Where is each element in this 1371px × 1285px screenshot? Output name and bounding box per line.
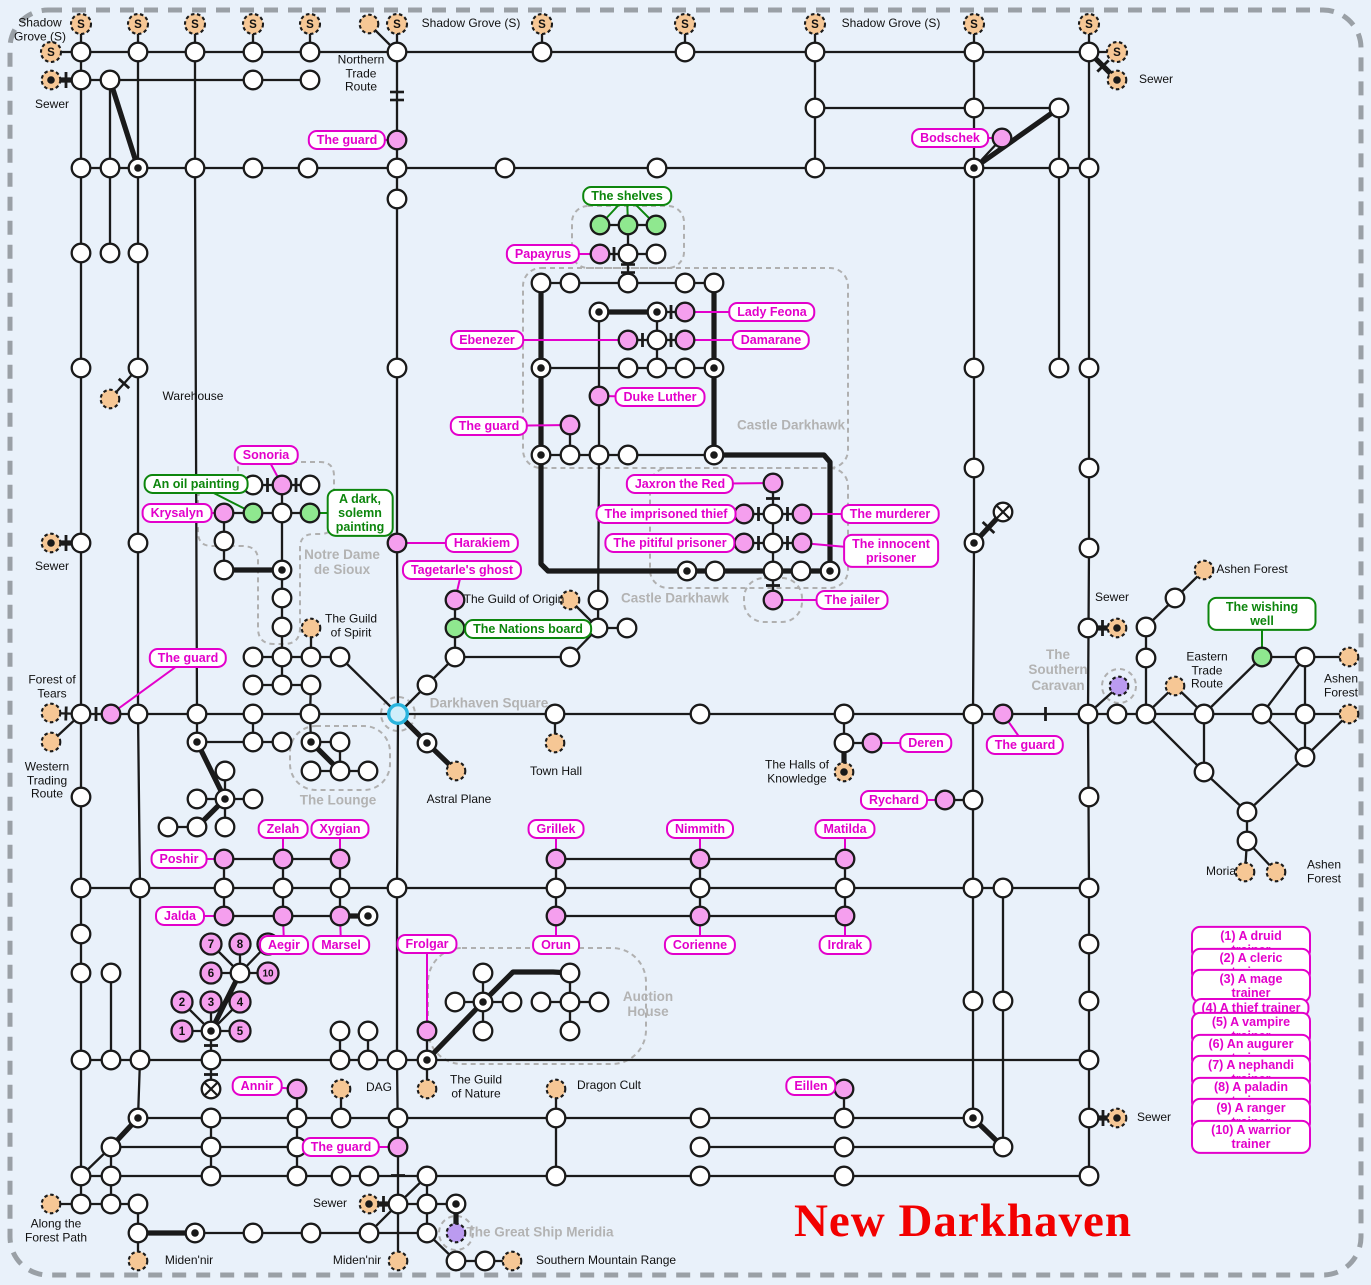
npc-label: The guard bbox=[986, 735, 1064, 755]
npc-label: Krysalyn bbox=[142, 503, 213, 523]
area-label: Miden'nir bbox=[165, 1254, 213, 1268]
area-label: Ashen Forest bbox=[1216, 563, 1287, 577]
area-label: Sewer bbox=[1137, 1111, 1171, 1125]
npc-label: Zelah bbox=[258, 819, 309, 839]
area-label: Sewer bbox=[1139, 73, 1173, 87]
area-label: DAG bbox=[366, 1081, 392, 1095]
area-label: Shadow Grove (S) bbox=[422, 17, 521, 31]
npc-label: The pitiful prisoner bbox=[604, 533, 735, 553]
npc-label: Papayrus bbox=[506, 244, 580, 264]
npc-label: The guard bbox=[149, 648, 227, 668]
npc-label: Jalda bbox=[155, 906, 205, 926]
area-label: Warehouse bbox=[163, 390, 224, 404]
area-label: Along the Forest Path bbox=[25, 1217, 87, 1244]
npc-label: Poshir bbox=[151, 849, 208, 869]
npc-label: Jaxron the Red bbox=[626, 474, 734, 494]
area-label: Shadow Grove (S) bbox=[14, 16, 66, 43]
object-label: An oil painting bbox=[144, 474, 249, 494]
npc-label: Aegir bbox=[259, 935, 309, 955]
npc-label: Marsel bbox=[312, 935, 370, 955]
npc-label: Damarane bbox=[732, 330, 810, 350]
object-label: The shelves bbox=[582, 186, 672, 206]
trainer-legend-item: (10) A warrior trainer bbox=[1191, 1119, 1311, 1153]
npc-label: Duke Luther bbox=[615, 387, 706, 407]
district-label: The Southern Caravan bbox=[1028, 647, 1087, 693]
npc-label: Eillen bbox=[785, 1076, 836, 1096]
area-label: The Halls of Knowledge bbox=[765, 758, 829, 785]
npc-label: Deren bbox=[899, 733, 952, 753]
area-label: Forest of Tears bbox=[28, 673, 75, 700]
npc-label: Ebenezer bbox=[450, 330, 524, 350]
area-label: Sewer bbox=[1095, 591, 1129, 605]
area-label: Moria bbox=[1206, 865, 1236, 879]
area-label: The Guild of Nature bbox=[450, 1073, 502, 1100]
area-label: Eastern Trade Route bbox=[1186, 651, 1227, 692]
map-title: New Darkhaven bbox=[794, 1194, 1132, 1248]
npc-label: Xygian bbox=[311, 819, 370, 839]
area-label: Town Hall bbox=[530, 765, 582, 779]
npc-label: The guard bbox=[450, 416, 528, 436]
npc-label: Nimmith bbox=[666, 819, 734, 839]
area-label: Sewer bbox=[35, 560, 69, 574]
npc-label: Lady Feona bbox=[728, 302, 815, 322]
area-label: Ashen Forest bbox=[1324, 672, 1358, 699]
area-label: Northern Trade Route bbox=[338, 54, 385, 95]
object-label: The Nations board bbox=[464, 619, 592, 639]
npc-label: The guard bbox=[302, 1137, 380, 1157]
district-label: Notre Dame de Sioux bbox=[304, 547, 380, 578]
npc-label: Frolgar bbox=[396, 934, 457, 954]
npc-label: Annir bbox=[232, 1076, 283, 1096]
new-darkhaven-map: SSSSSSSSSSSSS78961023415 The guardBodsch… bbox=[0, 0, 1371, 1285]
area-label: The Guild of Spirit bbox=[325, 612, 377, 639]
npc-label: Bodschek bbox=[911, 128, 989, 148]
npc-label: Tagetarle's ghost bbox=[402, 560, 522, 580]
object-label: The wishing well bbox=[1208, 597, 1317, 631]
area-label: Miden'nir bbox=[333, 1254, 381, 1268]
area-label: Ashen Forest bbox=[1301, 858, 1348, 885]
npc-label: Grillek bbox=[528, 819, 585, 839]
map-labels-layer: The guardBodschekPapayrusLady FeonaEbene… bbox=[0, 0, 1371, 1285]
npc-label: Matilda bbox=[814, 819, 875, 839]
area-label: Southern Mountain Range bbox=[536, 1254, 676, 1268]
npc-label: The imprisoned thief bbox=[596, 504, 737, 524]
object-label: A dark, solemn painting bbox=[327, 489, 394, 537]
npc-label: The guard bbox=[308, 130, 386, 150]
area-label: Astral Plane bbox=[427, 793, 492, 807]
district-label: Darkhaven Square bbox=[430, 695, 549, 710]
npc-label: Corienne bbox=[664, 935, 736, 955]
npc-label: Orun bbox=[532, 935, 580, 955]
district-label: Castle Darkhawk bbox=[737, 417, 845, 432]
district-label: Auction House bbox=[623, 989, 673, 1020]
district-label: Castle Darkhawk bbox=[621, 590, 729, 605]
npc-label: The jailer bbox=[816, 590, 889, 610]
area-label: Western Trading Route bbox=[25, 761, 69, 802]
area-label: Sewer bbox=[313, 1197, 347, 1211]
npc-label: Irdrak bbox=[819, 935, 872, 955]
npc-label: Sonoria bbox=[234, 445, 299, 465]
npc-label: Rychard bbox=[860, 790, 928, 810]
area-label: Shadow Grove (S) bbox=[842, 17, 941, 31]
district-label: The Great Ship Meridia bbox=[466, 1224, 613, 1239]
area-label: Sewer bbox=[35, 98, 69, 112]
area-label: Dragon Cult bbox=[577, 1079, 641, 1093]
district-label: The Lounge bbox=[300, 792, 377, 807]
area-label: The Guild of Origin bbox=[464, 593, 565, 607]
npc-label: The innocent prisoner bbox=[843, 534, 939, 568]
npc-label: The murderer bbox=[841, 504, 940, 524]
npc-label: Harakiem bbox=[445, 533, 519, 553]
